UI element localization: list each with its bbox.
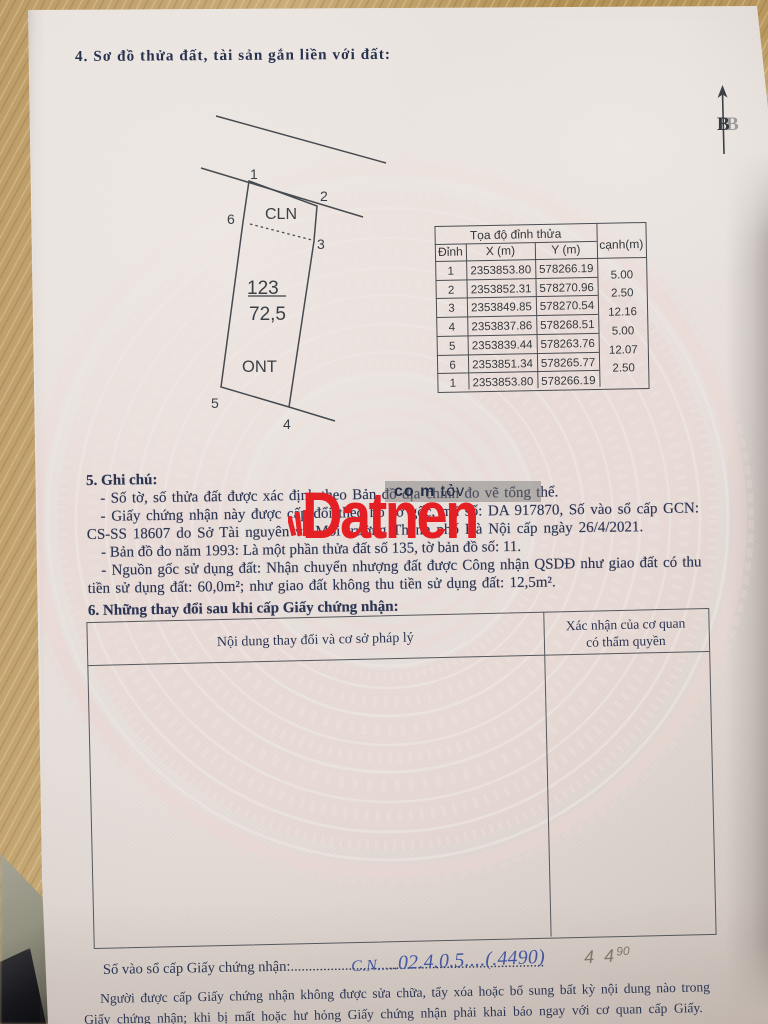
svg-text:CLN: CLN — [265, 206, 297, 223]
svg-text:4: 4 — [283, 416, 291, 432]
svg-text:B: B — [717, 114, 730, 135]
svg-text:6: 6 — [227, 211, 235, 227]
svg-text:72,5: 72,5 — [249, 304, 286, 325]
svg-text:1: 1 — [250, 166, 258, 182]
svg-text:5: 5 — [211, 395, 219, 411]
svg-text:2: 2 — [320, 188, 328, 204]
svg-text:ONT: ONT — [242, 358, 277, 376]
svg-text:3: 3 — [317, 236, 325, 252]
